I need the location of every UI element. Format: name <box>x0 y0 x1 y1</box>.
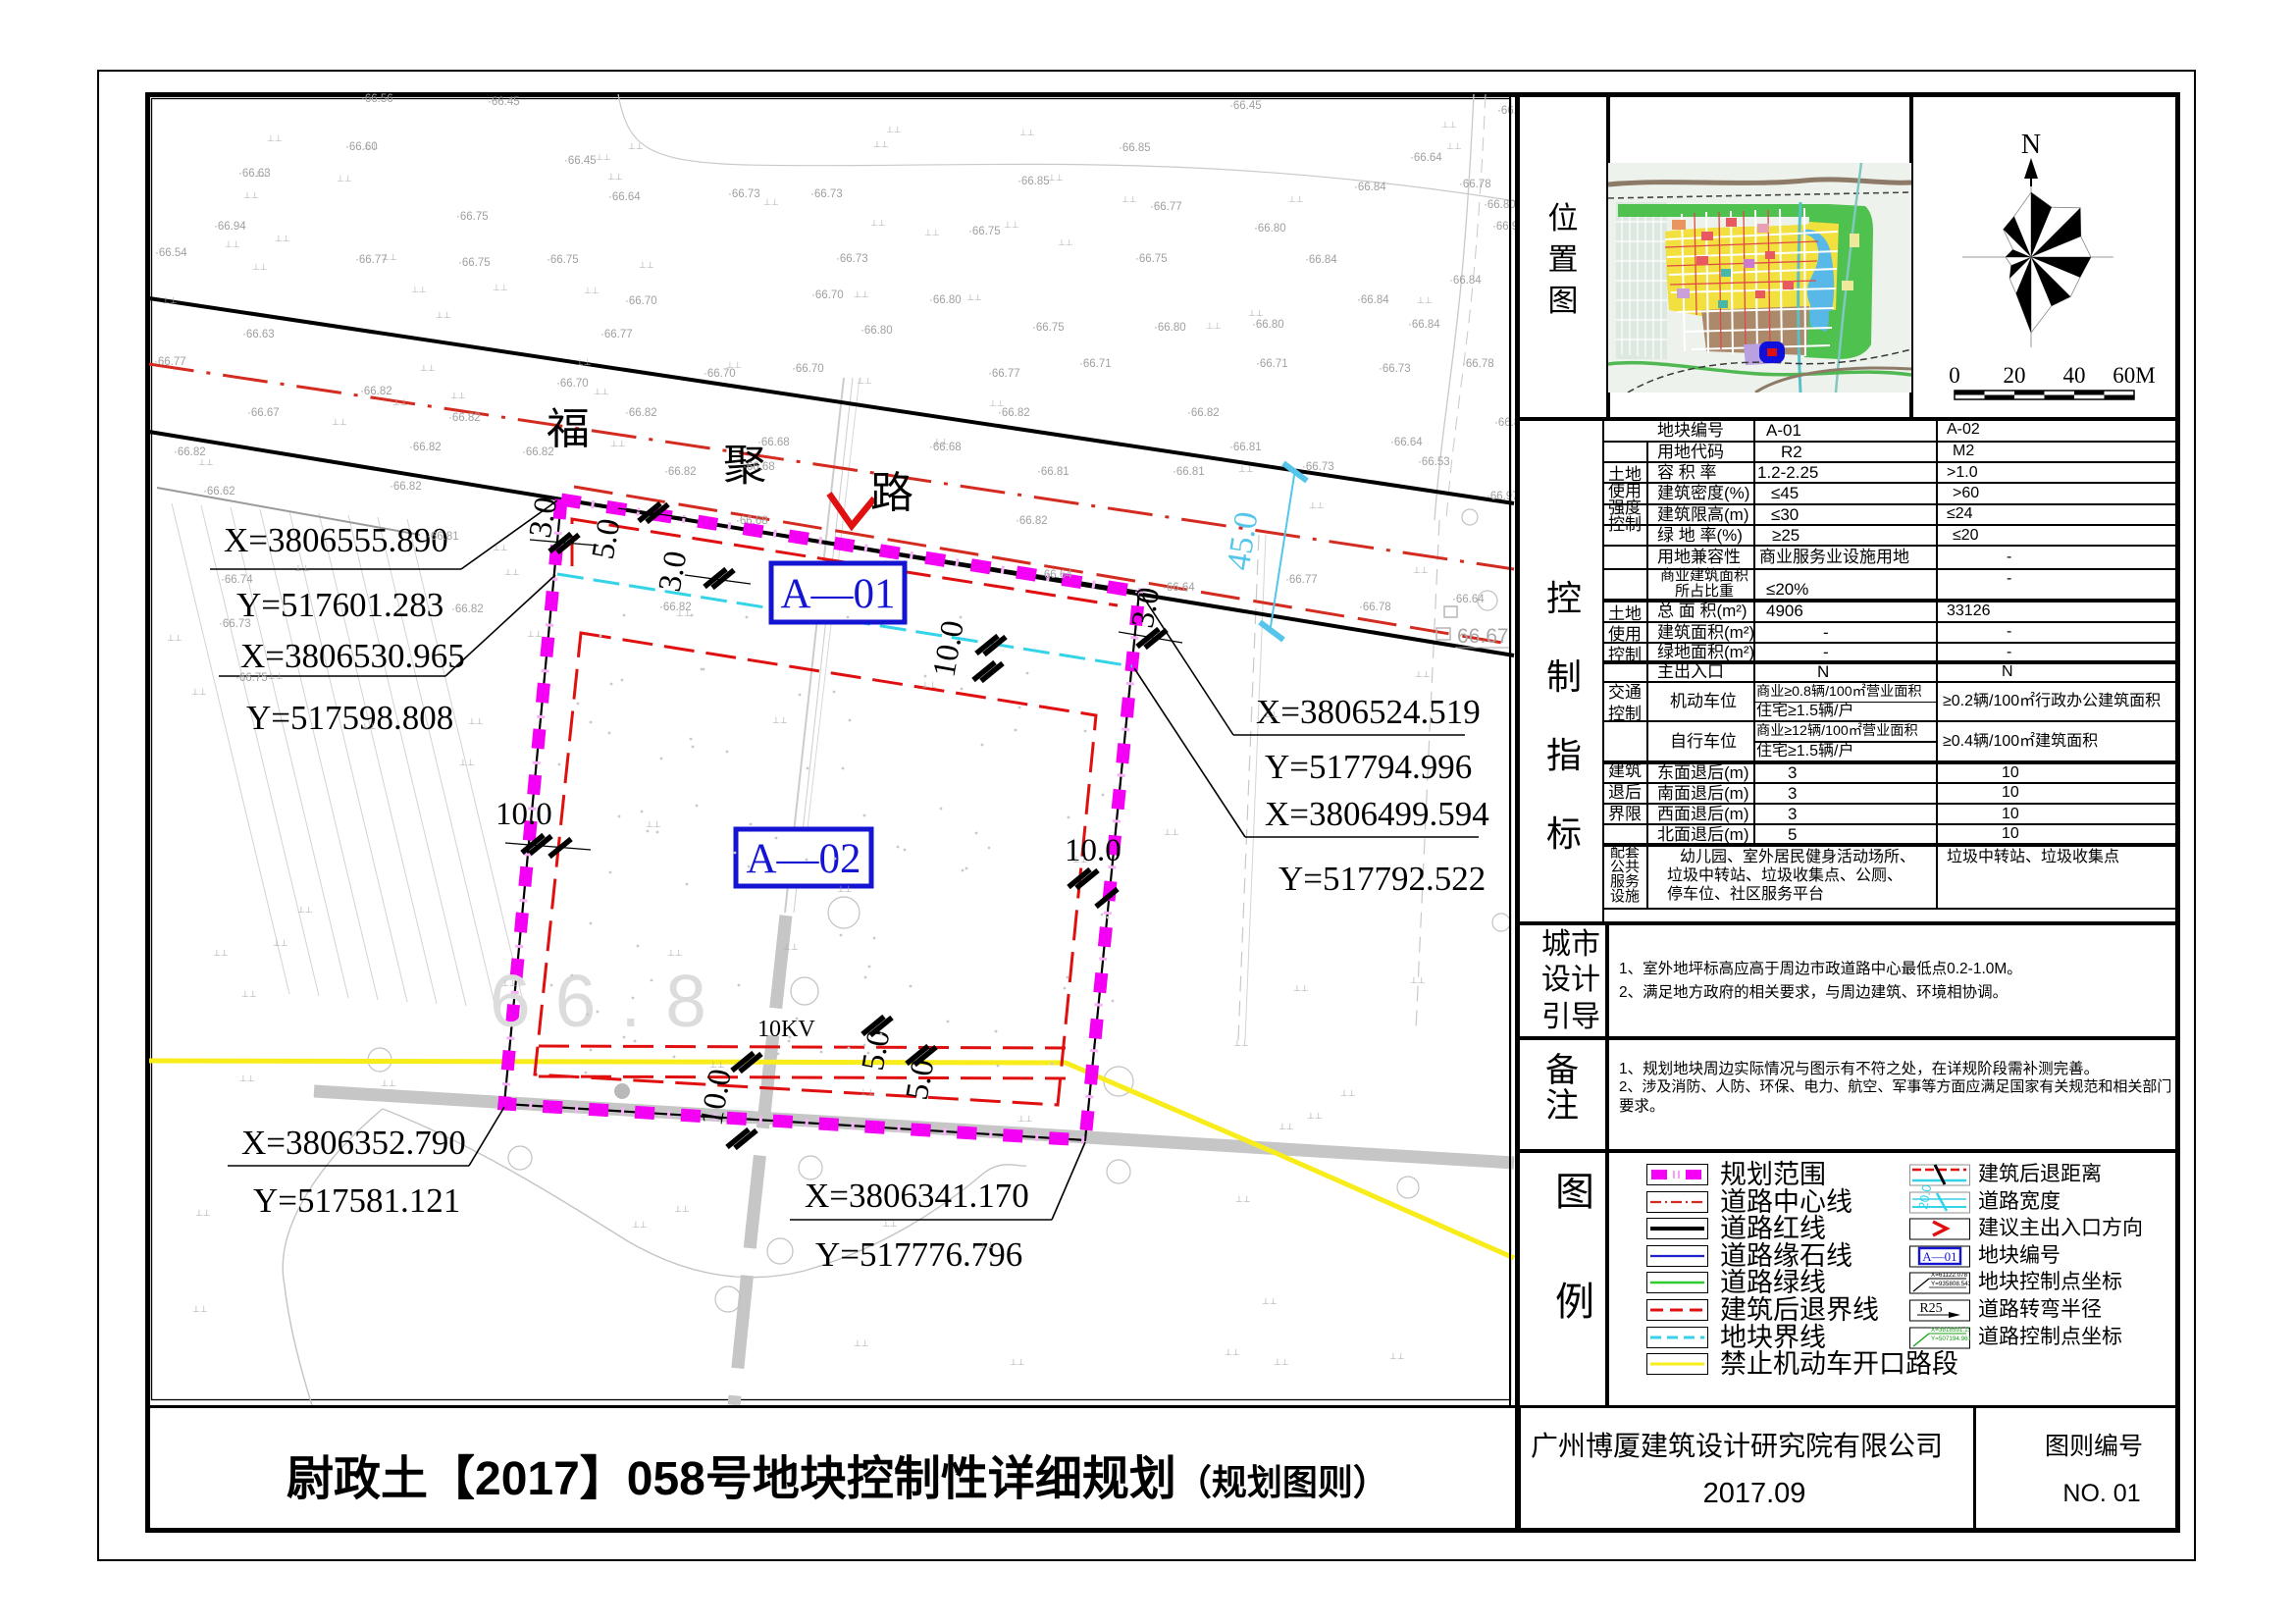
svg-text:·66.73: ·66.73 <box>810 188 843 200</box>
svg-text:·66.80: ·66.80 <box>1254 223 1286 235</box>
svg-text:⊥⊥: ⊥⊥ <box>1058 237 1073 247</box>
svg-text:⊥⊥: ⊥⊥ <box>1233 1038 1249 1048</box>
svg-text:⊥⊥: ⊥⊥ <box>667 948 683 958</box>
svg-text:·66.70: ·66.70 <box>625 295 657 307</box>
svg-text:⊥⊥: ⊥⊥ <box>674 1204 690 1214</box>
svg-text:3.0: 3.0 <box>652 549 695 595</box>
svg-text:⊥⊥: ⊥⊥ <box>646 819 661 829</box>
svg-text:·66.81: ·66.81 <box>1037 466 1069 478</box>
svg-text:⊥⊥: ⊥⊥ <box>493 283 508 292</box>
svg-text:A—01: A—01 <box>780 571 895 617</box>
svg-text:⊥⊥: ⊥⊥ <box>1121 194 1137 204</box>
svg-text:⊥⊥: ⊥⊥ <box>1262 1296 1278 1306</box>
svg-text:⊥⊥: ⊥⊥ <box>1441 120 1457 130</box>
svg-text:⊥⊥: ⊥⊥ <box>989 398 1005 408</box>
svg-text:⊥⊥: ⊥⊥ <box>1417 295 1433 305</box>
svg-text:Y=517794.996: Y=517794.996 <box>1265 748 1472 786</box>
svg-text:·66.82: ·66.82 <box>451 603 484 615</box>
svg-text:·66.73: ·66.73 <box>219 618 251 630</box>
svg-text:⊥⊥: ⊥⊥ <box>628 141 644 151</box>
svg-text:·66.64: ·66.64 <box>1410 152 1442 164</box>
svg-text:·66.75: ·66.75 <box>1032 322 1065 334</box>
svg-text:·66.80: ·66.80 <box>1154 322 1186 334</box>
svg-text:⊥⊥: ⊥⊥ <box>783 942 799 952</box>
svg-text:·66.75: ·66.75 <box>968 226 1001 237</box>
svg-text:⊥⊥: ⊥⊥ <box>933 437 949 446</box>
svg-text:⊥⊥: ⊥⊥ <box>1389 1351 1405 1361</box>
svg-text:⊥⊥: ⊥⊥ <box>837 884 853 894</box>
svg-text:·66.81: ·66.81 <box>427 531 459 543</box>
svg-text:·66.77: ·66.77 <box>1150 201 1182 213</box>
svg-text:⊥⊥: ⊥⊥ <box>381 1078 396 1088</box>
svg-text:⊥⊥: ⊥⊥ <box>596 152 611 162</box>
svg-text:·66.80: ·66.80 <box>1484 199 1516 211</box>
svg-text:⊥⊥: ⊥⊥ <box>297 905 313 915</box>
svg-text:⊥⊥: ⊥⊥ <box>198 457 214 467</box>
svg-text:·66.73: ·66.73 <box>1302 461 1334 473</box>
svg-text:⊥⊥: ⊥⊥ <box>392 397 408 407</box>
svg-text:⊥⊥: ⊥⊥ <box>921 680 937 690</box>
svg-text:Y=517581.121: Y=517581.121 <box>253 1181 460 1220</box>
svg-text:·66.73: ·66.73 <box>728 188 760 200</box>
svg-text:Y=507194.961: Y=507194.961 <box>1931 1336 1970 1342</box>
svg-text:·66.64: ·66.64 <box>1163 582 1195 594</box>
svg-text:⊥⊥: ⊥⊥ <box>1019 128 1035 137</box>
svg-text:⊥⊥: ⊥⊥ <box>709 1060 725 1070</box>
svg-text:·66.45: ·66.45 <box>564 155 597 167</box>
svg-text:45.0: 45.0 <box>1221 509 1266 573</box>
svg-text:·66.82: ·66.82 <box>360 386 392 397</box>
svg-text:·66.82: ·66.82 <box>1016 515 1048 527</box>
svg-text:·66.64: ·66.64 <box>1390 437 1423 448</box>
svg-text:R25: R25 <box>1919 1301 1942 1316</box>
svg-text:·66.71: ·66.71 <box>1256 358 1288 370</box>
svg-text:·66.54: ·66.54 <box>155 247 187 259</box>
svg-text:·66.81: ·66.81 <box>1229 442 1262 453</box>
svg-text:⊥⊥: ⊥⊥ <box>584 286 600 295</box>
svg-text:·66.68: ·66.68 <box>757 437 790 448</box>
svg-text:·66.82: ·66.82 <box>664 466 697 478</box>
svg-text:·66.53: ·66.53 <box>1418 456 1450 468</box>
svg-text:⊥⊥: ⊥⊥ <box>254 169 270 179</box>
svg-text:⊥⊥: ⊥⊥ <box>1278 1122 1294 1131</box>
svg-text:⊥⊥: ⊥⊥ <box>854 289 869 299</box>
svg-text:⊥⊥: ⊥⊥ <box>332 417 347 427</box>
svg-text:66.8: 66.8 <box>490 960 731 1042</box>
svg-text:Y=517598.808: Y=517598.808 <box>246 699 453 737</box>
svg-text:⊥⊥: ⊥⊥ <box>450 391 466 400</box>
svg-text:⊥⊥: ⊥⊥ <box>1248 308 1264 318</box>
svg-text:X=3806530.965: X=3806530.965 <box>240 637 465 675</box>
svg-text:⊥⊥: ⊥⊥ <box>239 1074 255 1083</box>
svg-text:⊥⊥: ⊥⊥ <box>857 376 872 386</box>
svg-text:⊥⊥: ⊥⊥ <box>363 141 379 151</box>
svg-text:⊥⊥: ⊥⊥ <box>191 687 207 697</box>
svg-text:·66.84: ·66.84 <box>1354 182 1386 193</box>
svg-text:⊥⊥: ⊥⊥ <box>1164 827 1179 837</box>
svg-text:·66.70: ·66.70 <box>811 289 844 301</box>
svg-text:⊥⊥: ⊥⊥ <box>213 948 229 958</box>
svg-text:⊥⊥: ⊥⊥ <box>195 1208 211 1218</box>
svg-text:⊥⊥: ⊥⊥ <box>1225 1347 1240 1357</box>
svg-text:10.0: 10.0 <box>926 618 970 680</box>
svg-text:·66.81: ·66.81 <box>1173 466 1205 478</box>
svg-text:⊥⊥: ⊥⊥ <box>268 671 284 681</box>
svg-text:10.0: 10.0 <box>496 797 552 832</box>
svg-text:·66.82: ·66.82 <box>625 407 657 419</box>
svg-text:66.67: 66.67 <box>1457 625 1509 648</box>
svg-text:·66.77: ·66.77 <box>154 356 186 368</box>
svg-text:⊥⊥: ⊥⊥ <box>576 357 592 367</box>
svg-text:·66.45: ·66.45 <box>1229 100 1262 112</box>
svg-text:·66.75: ·66.75 <box>458 257 491 269</box>
svg-text:·66.64: ·66.64 <box>608 191 641 203</box>
svg-text:⊥⊥: ⊥⊥ <box>594 387 609 396</box>
svg-text:⊥⊥: ⊥⊥ <box>639 260 654 270</box>
svg-text:⊥⊥: ⊥⊥ <box>1293 983 1309 993</box>
svg-text:⊥⊥: ⊥⊥ <box>1410 975 1426 985</box>
svg-text:⊥⊥: ⊥⊥ <box>726 360 742 370</box>
svg-text:·66.74: ·66.74 <box>221 574 253 586</box>
svg-text:·66.80: ·66.80 <box>861 325 893 337</box>
svg-text:5.0: 5.0 <box>856 1027 898 1074</box>
svg-text:⊥⊥: ⊥⊥ <box>632 1220 648 1230</box>
svg-text:⊥⊥: ⊥⊥ <box>1048 173 1064 183</box>
svg-text:·66.75: ·66.75 <box>547 254 579 266</box>
svg-text:⊥⊥: ⊥⊥ <box>1263 709 1278 719</box>
svg-text:·66.71: ·66.71 <box>1079 358 1112 370</box>
svg-text:10KV: 10KV <box>757 1017 815 1042</box>
svg-text:⊥⊥: ⊥⊥ <box>610 439 626 448</box>
svg-text:3.0: 3.0 <box>523 495 565 541</box>
svg-text:⊥⊥: ⊥⊥ <box>979 1240 995 1250</box>
svg-text:⊥⊥: ⊥⊥ <box>1004 220 1019 230</box>
svg-text:·66.94: ·66.94 <box>214 221 246 233</box>
svg-text:Y=935808.543: Y=935808.543 <box>1931 1281 1970 1287</box>
svg-text:·66.84: ·66.84 <box>1408 319 1440 331</box>
svg-text:⊥⊥: ⊥⊥ <box>772 715 788 725</box>
svg-text:5.0: 5.0 <box>586 516 628 562</box>
svg-text:20: 20 <box>2004 363 2026 388</box>
svg-text:⊥⊥: ⊥⊥ <box>337 174 352 183</box>
svg-text:·66.77: ·66.77 <box>1285 574 1318 586</box>
svg-text:⊥⊥: ⊥⊥ <box>886 125 902 134</box>
svg-text:·66.68: ·66.68 <box>736 515 768 527</box>
svg-text:⊥⊥: ⊥⊥ <box>294 563 310 573</box>
svg-text:Y=517792.522: Y=517792.522 <box>1278 860 1486 898</box>
svg-text:N: N <box>2021 130 2041 160</box>
svg-text:⊥⊥: ⊥⊥ <box>1206 321 1222 331</box>
svg-text:·66.77: ·66.77 <box>600 329 633 341</box>
svg-text:⊥⊥: ⊥⊥ <box>763 197 779 207</box>
svg-text:·66.62: ·66.62 <box>203 486 235 498</box>
svg-text:·66.63: ·66.63 <box>242 329 275 341</box>
svg-text:⊥⊥: ⊥⊥ <box>162 295 178 305</box>
svg-text:⊥⊥: ⊥⊥ <box>882 1219 898 1229</box>
svg-text:·66.80: ·66.80 <box>929 294 962 306</box>
svg-text:⊥⊥: ⊥⊥ <box>870 218 886 228</box>
svg-text:·66.73: ·66.73 <box>836 253 868 265</box>
svg-text:⊥⊥: ⊥⊥ <box>501 978 517 988</box>
svg-text:Y=517601.283: Y=517601.283 <box>236 586 443 624</box>
svg-text:⊥⊥: ⊥⊥ <box>241 989 257 999</box>
svg-text:X=3818591.151: X=3818591.151 <box>1931 1327 1970 1334</box>
svg-text:·66.75: ·66.75 <box>456 211 489 223</box>
svg-text:·66.84: ·66.84 <box>1305 254 1337 266</box>
svg-text:⊥⊥: ⊥⊥ <box>167 633 183 643</box>
svg-text:·66.64: ·66.64 <box>1040 569 1072 581</box>
svg-text:·66.56: ·66.56 <box>361 93 393 105</box>
svg-text:·66.70: ·66.70 <box>556 378 589 390</box>
svg-text:·66.70: ·66.70 <box>792 363 824 375</box>
svg-text:·66.82: ·66.82 <box>522 446 554 458</box>
svg-text:·66.75: ·66.75 <box>235 672 268 684</box>
svg-text:⊥⊥: ⊥⊥ <box>1235 1194 1251 1204</box>
svg-text:⊥⊥: ⊥⊥ <box>1017 1114 1033 1124</box>
svg-text:⊥⊥: ⊥⊥ <box>273 938 288 948</box>
svg-text:·66.78: ·66.78 <box>1459 179 1491 190</box>
svg-text:⊥⊥: ⊥⊥ <box>436 310 451 320</box>
svg-text:·66.82: ·66.82 <box>448 412 481 424</box>
svg-text:X=3806352.790: X=3806352.790 <box>241 1124 466 1162</box>
svg-text:⊥⊥: ⊥⊥ <box>225 239 240 249</box>
svg-text:0: 0 <box>1949 363 1960 388</box>
svg-text:A—02: A—02 <box>746 836 861 882</box>
svg-text:·66.85: ·66.85 <box>1119 142 1151 154</box>
svg-text:路: 路 <box>870 469 913 517</box>
svg-text:⊥⊥: ⊥⊥ <box>493 543 508 552</box>
svg-text:⊥⊥: ⊥⊥ <box>1010 1357 1025 1367</box>
svg-text:·66.78: ·66.78 <box>1462 358 1494 370</box>
svg-text:⊥⊥: ⊥⊥ <box>1274 1357 1289 1367</box>
svg-text:X=3806341.170: X=3806341.170 <box>805 1177 1029 1215</box>
svg-text:⊥⊥: ⊥⊥ <box>382 252 397 262</box>
svg-text:⊥⊥: ⊥⊥ <box>468 716 484 726</box>
svg-text:·66.84: ·66.84 <box>1449 275 1482 287</box>
svg-text:⊥⊥: ⊥⊥ <box>854 1338 869 1348</box>
svg-text:⊥⊥: ⊥⊥ <box>411 285 427 294</box>
svg-text:⊥⊥: ⊥⊥ <box>192 1304 208 1314</box>
svg-text:⊥⊥: ⊥⊥ <box>860 1087 875 1097</box>
svg-text:·66.82: ·66.82 <box>390 481 422 493</box>
svg-text:⊥⊥: ⊥⊥ <box>267 133 283 143</box>
svg-text:⊥⊥: ⊥⊥ <box>607 172 623 182</box>
svg-text:·66.77: ·66.77 <box>988 368 1020 380</box>
svg-text:·66.67: ·66.67 <box>247 407 280 419</box>
svg-text:·66.78: ·66.78 <box>1359 602 1391 613</box>
svg-text:·66.82: ·66.82 <box>1187 407 1220 419</box>
svg-text:·66.82: ·66.82 <box>409 442 442 453</box>
svg-text:·66.85: ·66.85 <box>1017 176 1050 187</box>
svg-text:·66.64: ·66.64 <box>1452 594 1485 605</box>
svg-text:⊥⊥: ⊥⊥ <box>459 758 475 767</box>
svg-text:X=3806524.519: X=3806524.519 <box>1256 693 1481 731</box>
svg-text:⊥⊥: ⊥⊥ <box>1288 194 1304 204</box>
svg-text:⊥⊥: ⊥⊥ <box>1307 1111 1323 1121</box>
svg-text:60M: 60M <box>2112 363 2155 388</box>
svg-text:⊥⊥: ⊥⊥ <box>1446 141 1462 151</box>
svg-text:⊥⊥: ⊥⊥ <box>1238 464 1254 474</box>
svg-text:⊥⊥: ⊥⊥ <box>527 629 543 639</box>
svg-text:⊥⊥: ⊥⊥ <box>924 228 940 237</box>
svg-text:X=61122.078: X=61122.078 <box>1931 1272 1968 1279</box>
svg-text:⊥⊥: ⊥⊥ <box>966 292 982 302</box>
svg-text:⊥⊥: ⊥⊥ <box>1415 669 1431 679</box>
svg-text:⊥⊥: ⊥⊥ <box>361 721 377 731</box>
svg-text:·66.84: ·66.84 <box>1357 294 1389 306</box>
svg-text:⊥⊥: ⊥⊥ <box>1413 565 1429 575</box>
svg-text:·66.82: ·66.82 <box>998 407 1030 419</box>
svg-text:⊥⊥: ⊥⊥ <box>275 234 290 243</box>
svg-text:·66.73: ·66.73 <box>1379 363 1411 375</box>
svg-text:⊥⊥: ⊥⊥ <box>676 608 692 618</box>
svg-text:⊥⊥: ⊥⊥ <box>1340 1088 1356 1098</box>
svg-text:5.0: 5.0 <box>900 1057 942 1103</box>
svg-text:⊥⊥: ⊥⊥ <box>1072 855 1088 864</box>
svg-text:⊥⊥: ⊥⊥ <box>504 567 520 577</box>
svg-text:40: 40 <box>2063 363 2086 388</box>
svg-text:⊥⊥: ⊥⊥ <box>252 262 268 272</box>
svg-text:X=3806499.594: X=3806499.594 <box>1265 795 1489 833</box>
svg-text:·66.97: ·66.97 <box>1487 491 1518 502</box>
svg-text:⊥⊥: ⊥⊥ <box>420 363 436 373</box>
svg-text:⊥⊥: ⊥⊥ <box>873 139 889 149</box>
svg-text:·66.75: ·66.75 <box>1135 253 1168 265</box>
svg-text:⊥⊥: ⊥⊥ <box>243 190 259 200</box>
svg-text:·66.45: ·66.45 <box>488 96 520 108</box>
svg-text:⊥⊥: ⊥⊥ <box>1309 500 1325 510</box>
svg-text:·66.68: ·66.68 <box>743 461 775 473</box>
svg-text:X=3806555.890: X=3806555.890 <box>224 521 448 559</box>
svg-text:A—01: A—01 <box>1922 1249 1956 1264</box>
svg-text:·66.80: ·66.80 <box>1252 319 1284 331</box>
